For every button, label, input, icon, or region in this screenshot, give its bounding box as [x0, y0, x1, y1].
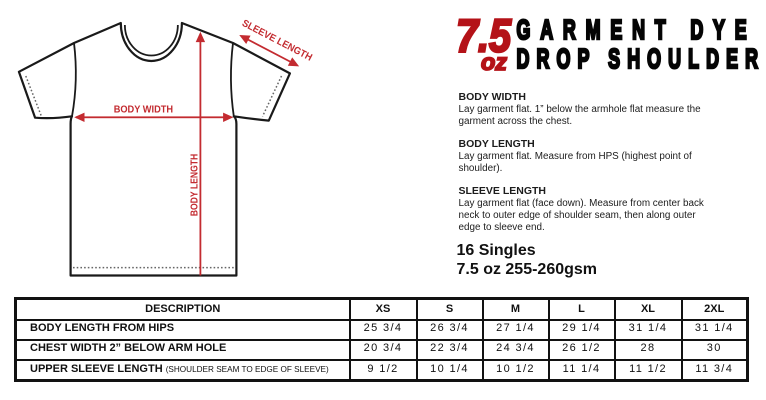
svg-text:DROP SHOULDER: DROP SHOULDER — [516, 43, 765, 74]
svg-text:BODY LENGTH: BODY LENGTH — [190, 154, 201, 217]
svg-text:BODY WIDTH: BODY WIDTH — [114, 105, 173, 116]
svg-text:oz: oz — [481, 49, 507, 75]
svg-text:GARMENT DYE: GARMENT DYE — [516, 14, 756, 45]
